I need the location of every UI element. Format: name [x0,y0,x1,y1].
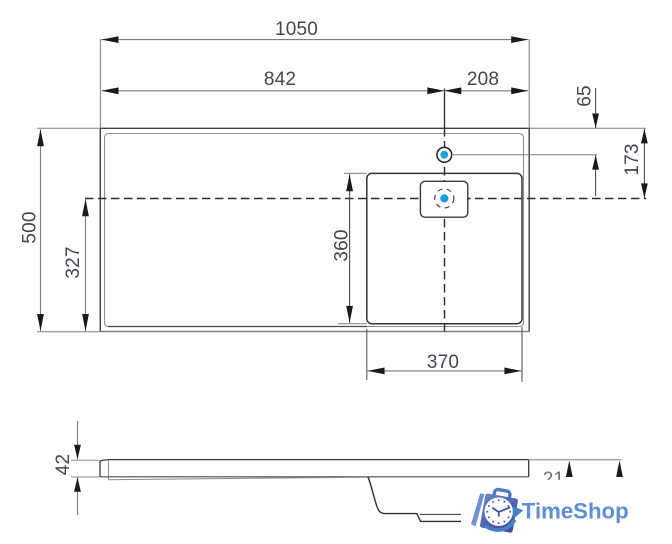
svg-text:TimeShop: TimeShop [522,499,629,524]
svg-text:500: 500 [20,211,41,243]
svg-text:208: 208 [467,69,499,90]
svg-text:360: 360 [332,229,353,261]
svg-text:370: 370 [427,352,459,373]
svg-text:65: 65 [575,85,596,107]
svg-text:327: 327 [63,246,84,278]
svg-text:173: 173 [622,143,643,175]
svg-text:842: 842 [264,69,296,90]
svg-text:1050: 1050 [275,19,318,40]
svg-text:42: 42 [53,454,74,476]
